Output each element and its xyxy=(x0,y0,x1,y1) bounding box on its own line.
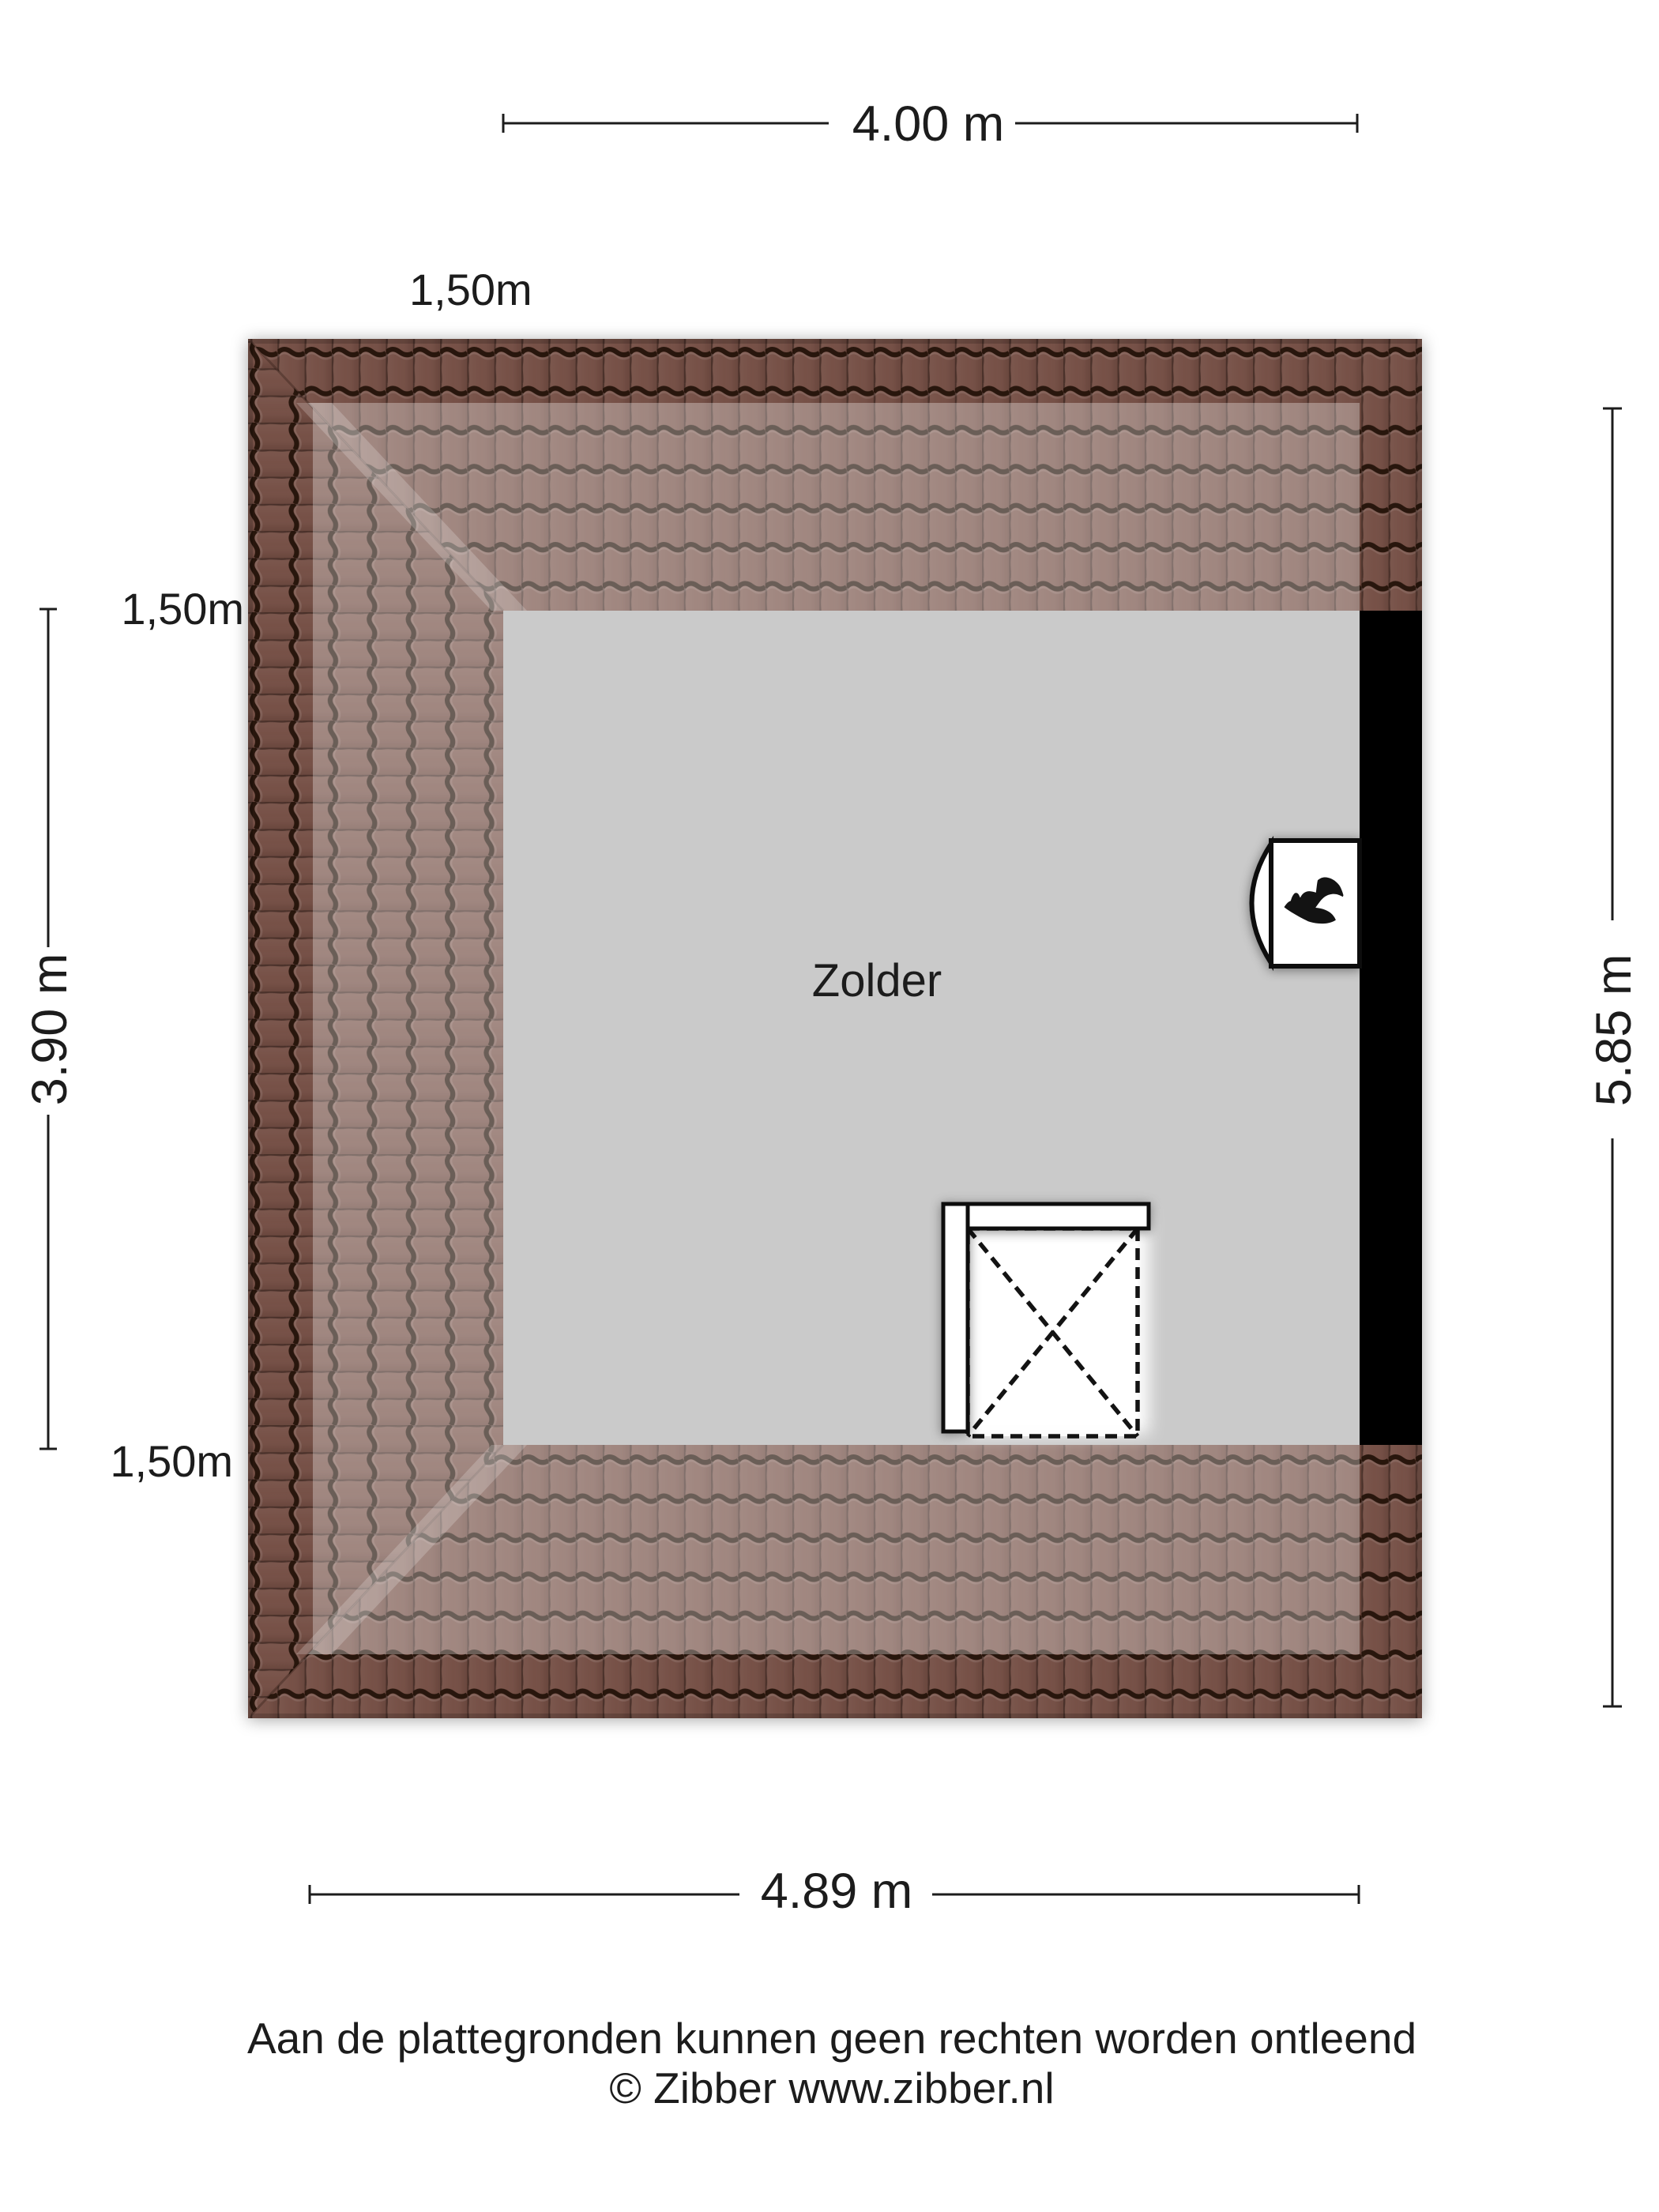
svg-text:Zolder: Zolder xyxy=(812,955,942,1006)
svg-text:5.85 m: 5.85 m xyxy=(1586,954,1642,1107)
svg-text:1,50m: 1,50m xyxy=(121,584,244,634)
svg-text:4.89 m: 4.89 m xyxy=(761,1864,913,1919)
svg-text:© Zibber www.zibber.nl: © Zibber www.zibber.nl xyxy=(609,2063,1054,2112)
svg-text:3.90 m: 3.90 m xyxy=(22,954,77,1106)
svg-text:1,50m: 1,50m xyxy=(110,1436,233,1486)
svg-text:4.00 m: 4.00 m xyxy=(852,96,1005,152)
svg-text:Aan de plattegronden kunnen ge: Aan de plattegronden kunnen geen rechten… xyxy=(247,2014,1416,2063)
svg-text:1,50m: 1,50m xyxy=(409,265,532,314)
